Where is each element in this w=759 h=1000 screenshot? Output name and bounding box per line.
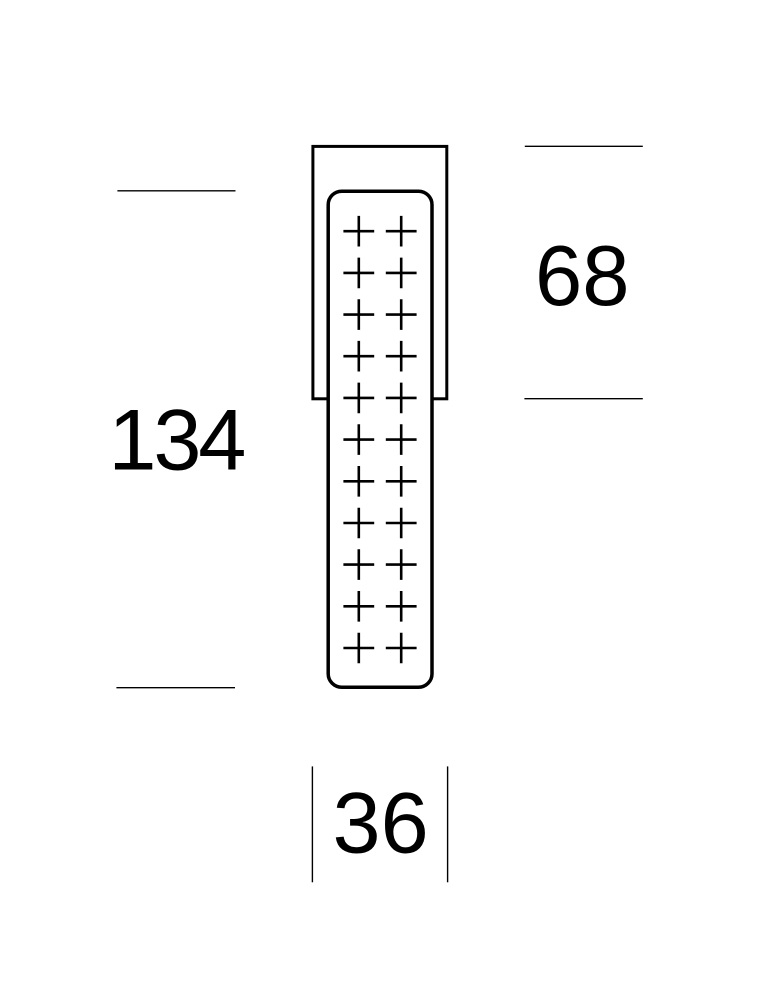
svg-text:134: 134 [108, 393, 244, 489]
svg-text:36: 36 [332, 776, 428, 872]
svg-text:68: 68 [535, 229, 630, 324]
